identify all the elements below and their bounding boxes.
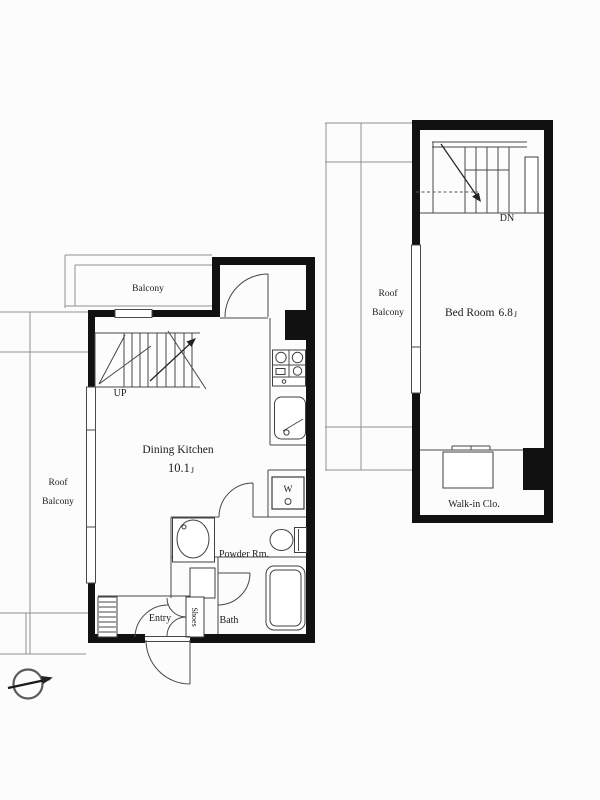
roof-balcony-2f: Roof Balcony	[325, 123, 412, 470]
roof-balcony-2f-label-2: Balcony	[372, 308, 404, 318]
bathtub-icon	[266, 566, 305, 630]
window-left-1f	[87, 387, 96, 583]
stair-window-box	[525, 157, 538, 213]
balcony: Balcony	[65, 255, 212, 308]
washer-nook: W	[268, 470, 306, 517]
staircase-up: UP	[95, 331, 206, 399]
bathroom: Bath	[190, 557, 305, 634]
entry-label: Entry	[149, 613, 171, 624]
roof-balcony-1f: Roof Balcony	[0, 312, 88, 654]
dining-kitchen-size: 10.1J	[168, 461, 194, 475]
shoe-cabinet	[98, 597, 117, 637]
entry-door	[145, 637, 190, 685]
washer-icon: W	[272, 477, 304, 509]
roof-balcony-1f-label-2: Balcony	[42, 497, 74, 507]
kitchen-sink-icon	[275, 397, 306, 439]
bedroom-label: Bed Room6.8J	[445, 307, 517, 319]
roof-balcony-1f-label-1: Roof	[49, 477, 69, 488]
walk-in-closet-label: Walk-in Clo.	[448, 499, 499, 510]
staircase-down: DN	[416, 142, 544, 224]
toilet-icon	[270, 528, 307, 553]
stove-icon	[273, 350, 306, 386]
vanity-sink-icon	[173, 518, 215, 562]
floor-plan-page: Balcony Roof Balcony UP	[0, 0, 600, 800]
dining-kitchen-labels: Dining Kitchen 10.1J	[142, 444, 213, 475]
stairs-up-label: UP	[114, 388, 127, 399]
bath-label: Bath	[220, 615, 239, 626]
washer-label: W	[284, 485, 293, 495]
shoes-label: Shoes	[190, 607, 199, 626]
window-balcony-1f	[115, 310, 152, 318]
walk-in-closet: Walk-in Clo.	[420, 446, 523, 510]
shoes-closet: Shoes	[167, 597, 204, 637]
closet-box	[443, 452, 493, 488]
laundry-space	[190, 568, 215, 598]
balcony-label: Balcony	[132, 284, 164, 294]
window-left-2f	[412, 245, 421, 393]
windows-2f	[412, 245, 421, 393]
powder-room-label: Powder Rm.	[219, 549, 269, 560]
floor-plan-drawing: Balcony Roof Balcony UP	[0, 0, 600, 800]
north-arrow-head-icon	[41, 676, 53, 684]
floor2-plan: Roof Balcony DN Walk-in Clo. Bed Room6.8…	[325, 120, 553, 523]
roof-balcony-2f-label-1: Roof	[379, 288, 399, 299]
balcony-door	[220, 274, 268, 318]
floor1-plan: Balcony Roof Balcony UP	[0, 255, 315, 684]
dining-kitchen-name: Dining Kitchen	[142, 444, 213, 456]
stairs-down-label: DN	[500, 213, 514, 224]
compass	[8, 670, 53, 699]
